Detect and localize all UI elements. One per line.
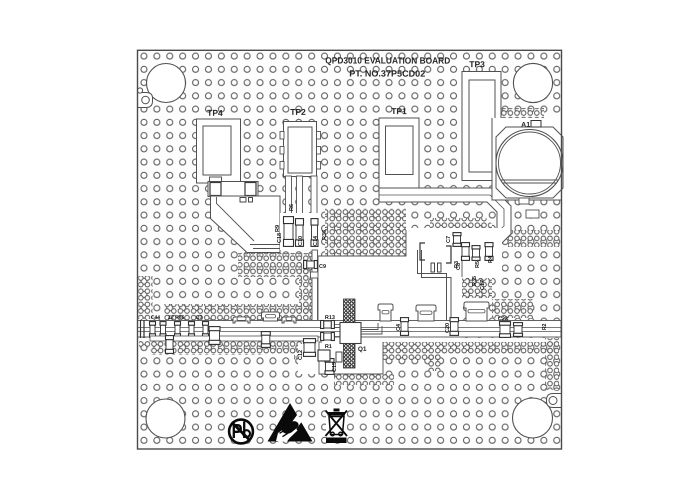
svg-text:R4: R4: [488, 255, 494, 263]
svg-text:TP4: TP4: [207, 108, 223, 118]
svg-text:TP2: TP2: [290, 107, 306, 117]
svg-text:C12: C12: [298, 350, 304, 360]
svg-text:C10: C10: [298, 236, 304, 246]
svg-text:C7: C7: [446, 236, 452, 243]
svg-text:R3: R3: [454, 261, 460, 268]
svg-text:R6: R6: [289, 204, 295, 211]
svg-text:C15: C15: [332, 362, 338, 372]
svg-text:R36: R36: [322, 230, 328, 240]
svg-text:C14: C14: [313, 235, 319, 246]
svg-text:A1: A1: [521, 122, 530, 129]
svg-text:TP3: TP3: [469, 59, 485, 69]
svg-text:PT. NO.37P5CD02: PT. NO.37P5CD02: [349, 68, 425, 78]
svg-text:C44: C44: [151, 315, 160, 321]
svg-text:C22: C22: [498, 316, 508, 322]
svg-text:C17: C17: [480, 280, 486, 290]
svg-text:R9: R9: [275, 225, 281, 232]
svg-text:R5: R5: [475, 261, 481, 268]
svg-text:C3: C3: [196, 315, 203, 321]
svg-text:C20: C20: [445, 323, 451, 333]
svg-text:C4: C4: [396, 323, 402, 331]
svg-text:TP1: TP1: [391, 106, 407, 116]
svg-text:R35: R35: [472, 276, 478, 286]
svg-text:C9: C9: [319, 264, 326, 270]
svg-text:Q1: Q1: [358, 346, 367, 353]
svg-text:R1: R1: [325, 344, 332, 350]
svg-text:QPD3010 EVALUATION BOARD: QPD3010 EVALUATION BOARD: [325, 55, 450, 65]
svg-text:R13: R13: [325, 315, 335, 321]
svg-text:C18: C18: [277, 233, 283, 243]
svg-text:Z2 R85: Z2 R85: [168, 315, 185, 321]
svg-text:R2: R2: [542, 323, 548, 330]
